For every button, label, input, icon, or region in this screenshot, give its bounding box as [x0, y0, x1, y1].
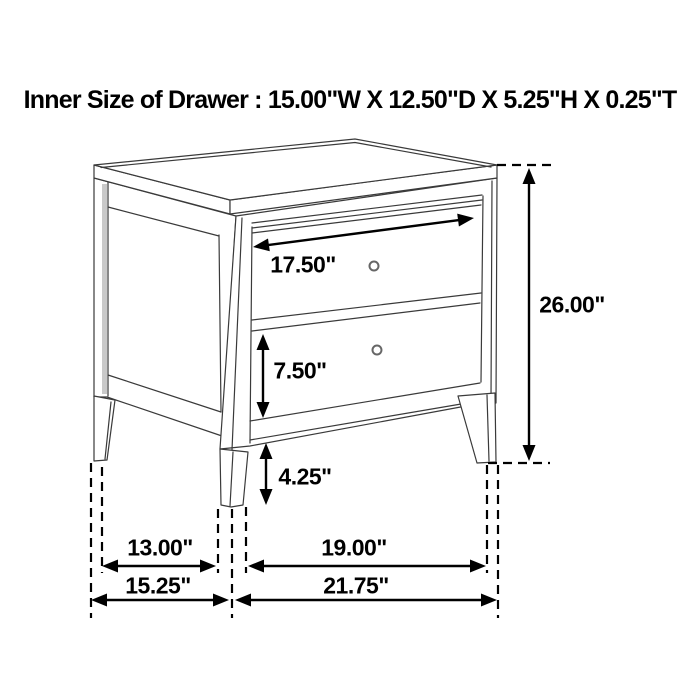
- back-left-leg: [94, 396, 115, 461]
- dim-label-inner-depth: 13.00": [127, 535, 192, 562]
- top-drawer-knob: [370, 262, 379, 271]
- dim-label-inner-width: 19.00": [321, 535, 386, 562]
- dim-label-leg-height: 4.25": [278, 464, 331, 491]
- side-panel: [94, 178, 236, 436]
- dim-arrow-overall-height: [523, 168, 536, 461]
- dim-label-overall-depth: 15.25": [125, 573, 190, 600]
- front-left-leg: [220, 449, 248, 507]
- dim-label-drawer-front-height: 7.50": [273, 358, 326, 385]
- dim-label-overall-width: 21.75": [323, 573, 388, 600]
- dim-label-overall-height: 26.00": [539, 292, 604, 319]
- front-right-leg: [458, 393, 496, 463]
- dimension-diagram-canvas: Inner Size of Drawer : 15.00"W X 12.50"D…: [0, 0, 700, 700]
- dim-label-drawer-front-width: 17.50": [270, 252, 335, 279]
- dim-arrow-leg-height: [260, 443, 273, 505]
- bottom-drawer-knob: [373, 346, 382, 355]
